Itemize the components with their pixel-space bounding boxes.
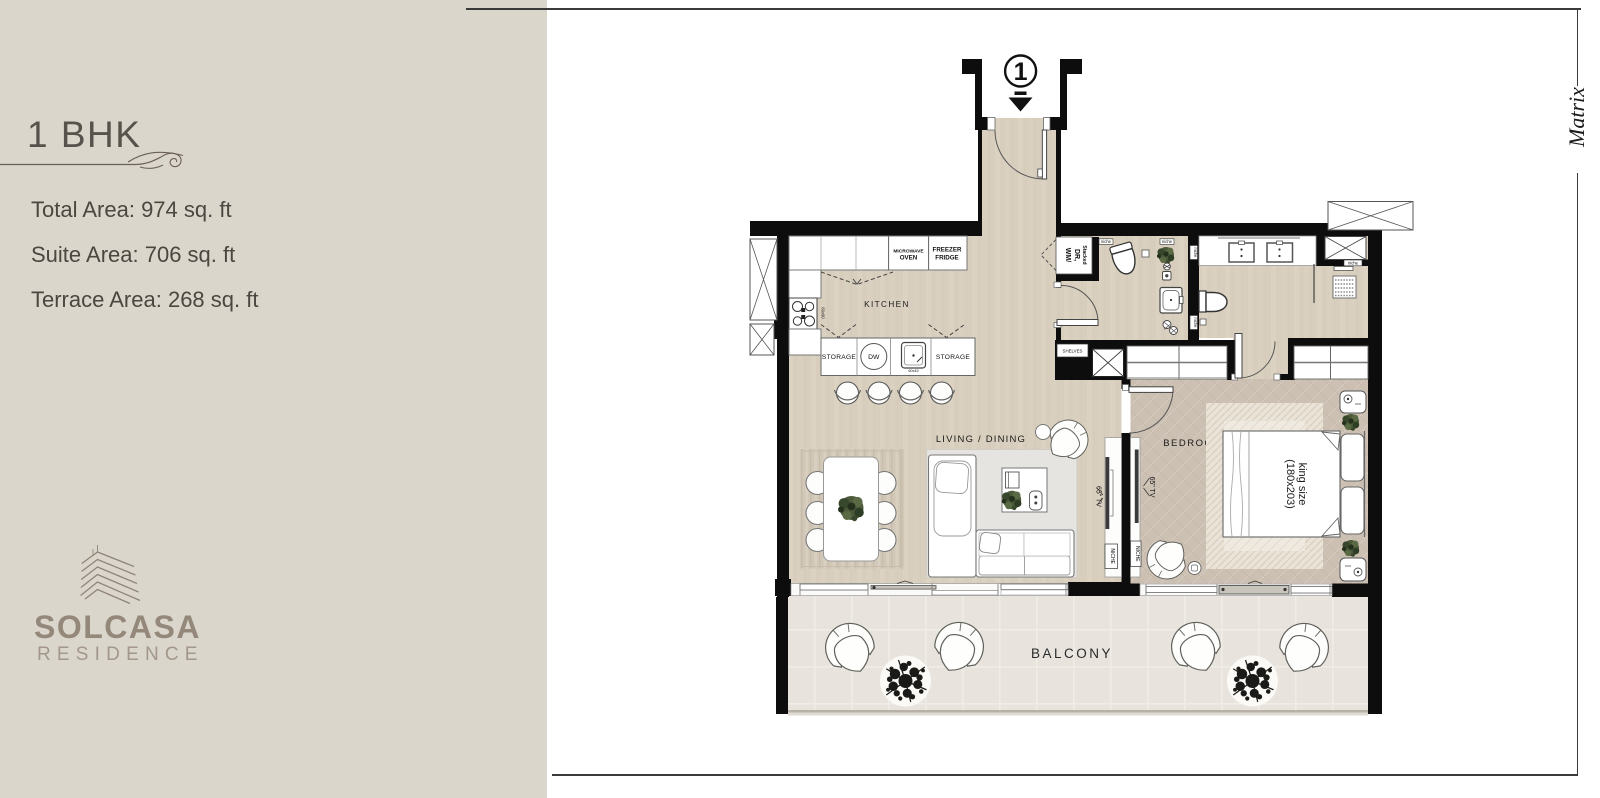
svg-text:DR,: DR,: [1073, 249, 1080, 261]
svg-text:BALCONY: BALCONY: [1031, 646, 1113, 661]
svg-text:niche: niche: [1162, 239, 1173, 244]
svg-text:FRIDGE: FRIDGE: [935, 255, 958, 262]
svg-text:OVEN: OVEN: [900, 255, 918, 262]
svg-text:65" TV: 65" TV: [1148, 476, 1155, 497]
svg-text:60x90: 60x90: [821, 307, 826, 319]
svg-text:FREEZER: FREEZER: [933, 247, 962, 254]
svg-text:NICHE: NICHE: [1134, 546, 1140, 562]
svg-text:niche: niche: [1101, 239, 1112, 244]
svg-text:LIVING / DINING: LIVING / DINING: [936, 434, 1026, 445]
svg-text:(180x203): (180x203): [1284, 459, 1296, 509]
svg-text:WM/: WM/: [1064, 248, 1071, 262]
svg-text:STORAGE: STORAGE: [936, 354, 971, 361]
svg-text:STORAGE: STORAGE: [822, 354, 857, 361]
svg-text:NICHE: NICHE: [1109, 548, 1115, 564]
svg-text:Stacked: Stacked: [1081, 245, 1087, 264]
svg-text:SHELVES: SHELVES: [1063, 349, 1083, 354]
svg-text:niche: niche: [1193, 247, 1198, 258]
svg-text:niche: niche: [1193, 317, 1198, 328]
svg-text:niche: niche: [1348, 261, 1359, 266]
svg-text:1: 1: [1014, 58, 1028, 86]
svg-text:DW: DW: [868, 354, 880, 361]
svg-text:60x45: 60x45: [908, 369, 918, 373]
svg-text:king size: king size: [1296, 463, 1308, 506]
svg-text:KITCHEN: KITCHEN: [864, 300, 910, 309]
